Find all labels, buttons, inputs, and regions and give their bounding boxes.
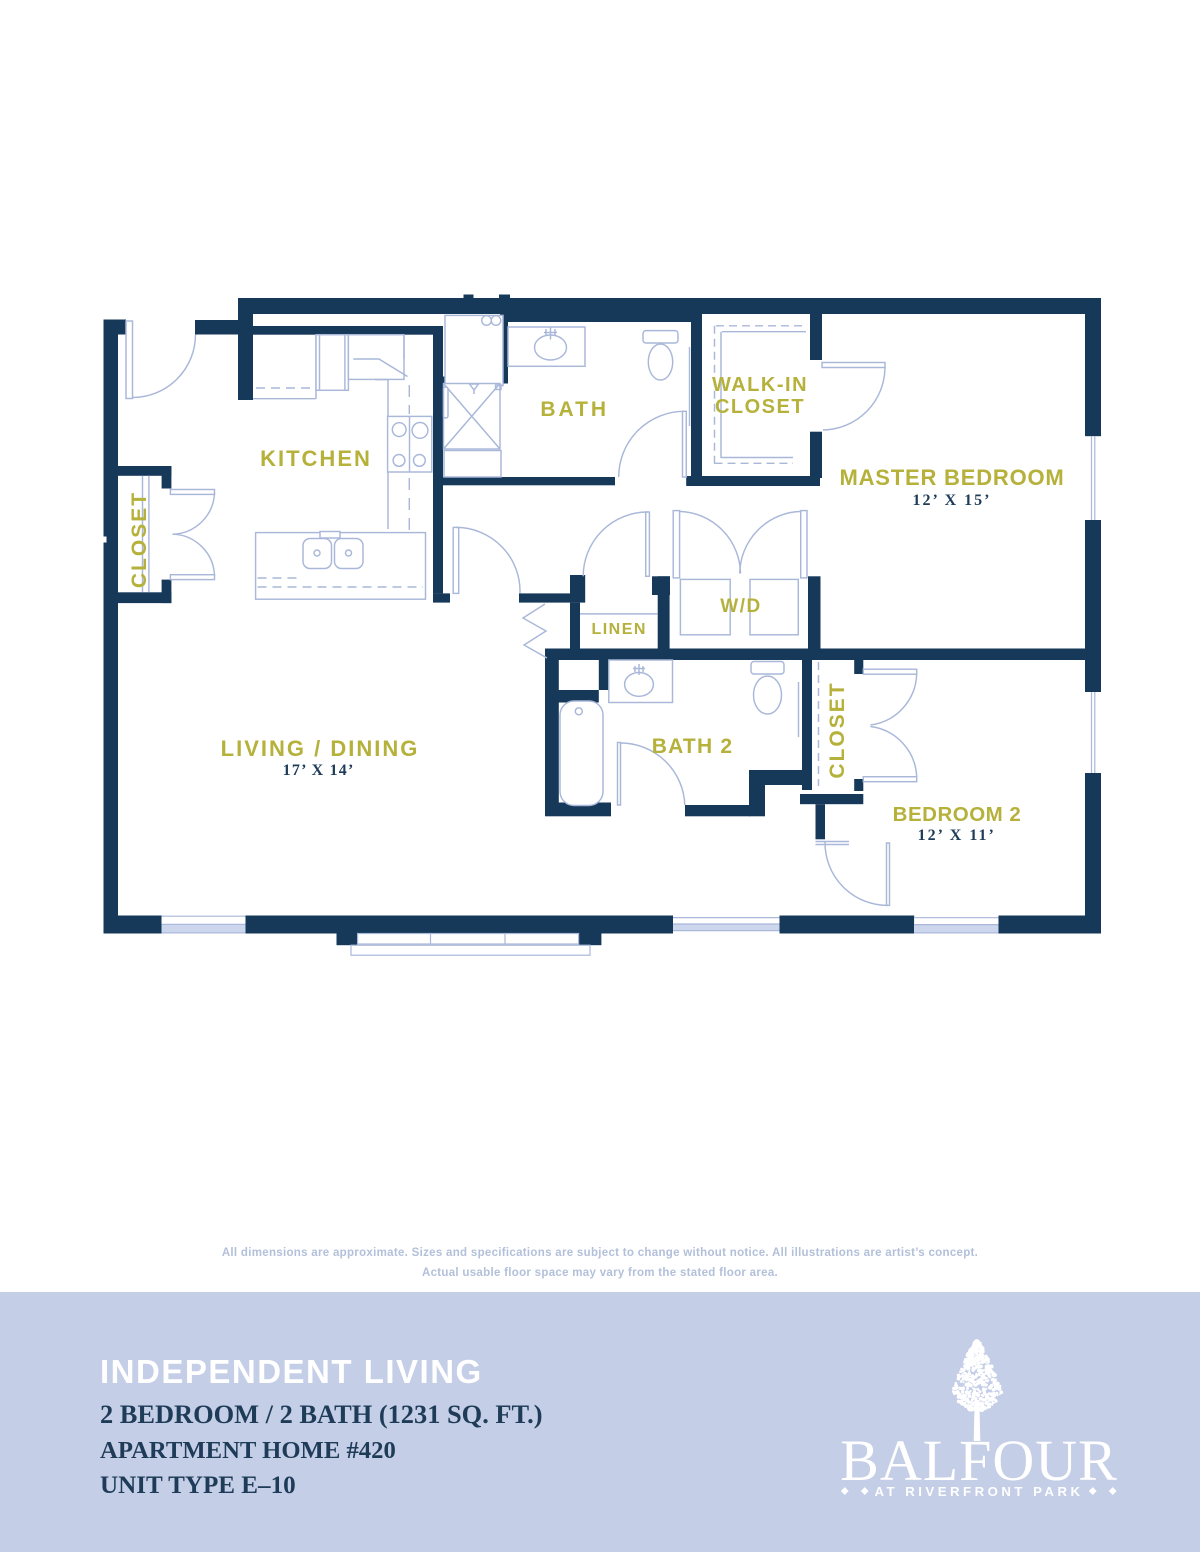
svg-text:MASTER BEDROOM: MASTER BEDROOM xyxy=(839,465,1064,490)
svg-text:12’ X 15’: 12’ X 15’ xyxy=(912,492,991,509)
svg-text:2 BEDROOM / 2 BATH (1231 SQ. F: 2 BEDROOM / 2 BATH (1231 SQ. FT.) xyxy=(100,1399,543,1429)
svg-text:Actual usable floor space may: Actual usable floor space may vary from … xyxy=(422,1267,778,1279)
svg-text:LINEN: LINEN xyxy=(591,621,647,638)
svg-text:APARTMENT HOME #420: APARTMENT HOME #420 xyxy=(100,1437,396,1464)
svg-text:BATH 2: BATH 2 xyxy=(652,735,733,758)
svg-text:BEDROOM 2: BEDROOM 2 xyxy=(893,803,1022,826)
svg-text:BATH: BATH xyxy=(540,398,609,421)
svg-text:UNIT TYPE E–10: UNIT TYPE E–10 xyxy=(100,1472,296,1499)
svg-text:17’ X 14’: 17’ X 14’ xyxy=(283,762,355,779)
svg-text:INDEPENDENT LIVING: INDEPENDENT LIVING xyxy=(100,1353,483,1390)
svg-text:LIVING / DINING: LIVING / DINING xyxy=(221,736,420,761)
svg-text:CLOSET: CLOSET xyxy=(826,681,849,778)
svg-text:KITCHEN: KITCHEN xyxy=(260,446,372,471)
svg-text:WALK-IN: WALK-IN xyxy=(712,374,808,396)
svg-text:All dimensions are approximate: All dimensions are approximate. Sizes an… xyxy=(222,1247,978,1259)
svg-text:CLOSET: CLOSET xyxy=(128,491,151,588)
svg-text:W/D: W/D xyxy=(720,596,761,617)
svg-text:CLOSET: CLOSET xyxy=(715,396,805,418)
svg-text:AT RIVERFRONT PARK: AT RIVERFRONT PARK xyxy=(874,1484,1083,1499)
svg-text:12’ X 11’: 12’ X 11’ xyxy=(918,827,996,844)
